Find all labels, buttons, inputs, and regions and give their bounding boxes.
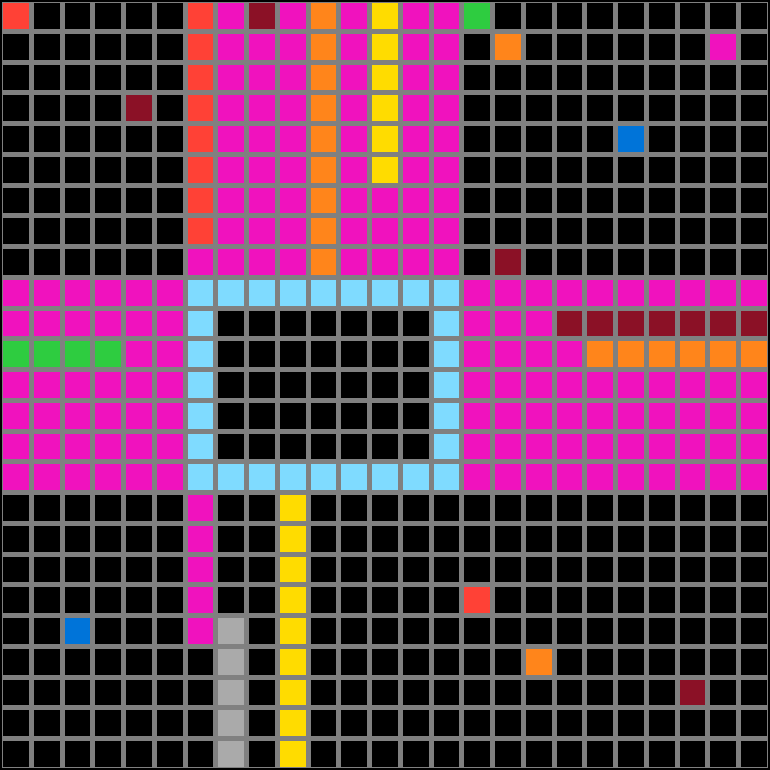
grid-cell-black[interactable] xyxy=(464,557,490,583)
grid-cell-black[interactable] xyxy=(65,557,91,583)
grid-cell-black[interactable] xyxy=(65,126,91,152)
grid-cell-black[interactable] xyxy=(587,188,613,214)
grid-cell-black[interactable] xyxy=(311,557,337,583)
grid-cell-black[interactable] xyxy=(680,557,706,583)
grid-cell-black[interactable] xyxy=(372,649,398,675)
grid-cell-black[interactable] xyxy=(249,680,275,706)
grid-cell-black[interactable] xyxy=(710,218,736,244)
grid-cell-black[interactable] xyxy=(126,188,152,214)
grid-cell-light-blue[interactable] xyxy=(188,403,214,429)
grid-cell-dark-red[interactable] xyxy=(649,311,675,337)
grid-cell-black[interactable] xyxy=(95,649,121,675)
grid-cell-magenta[interactable] xyxy=(34,372,60,398)
grid-cell-light-blue[interactable] xyxy=(218,280,244,306)
grid-cell-black[interactable] xyxy=(557,649,583,675)
grid-cell-magenta[interactable] xyxy=(157,434,183,460)
grid-cell-black[interactable] xyxy=(680,649,706,675)
grid-cell-red[interactable] xyxy=(464,587,490,613)
grid-cell-black[interactable] xyxy=(34,495,60,521)
grid-cell-black[interactable] xyxy=(280,434,306,460)
grid-cell-black[interactable] xyxy=(157,495,183,521)
grid-cell-magenta[interactable] xyxy=(680,434,706,460)
grid-cell-black[interactable] xyxy=(434,680,460,706)
grid-cell-black[interactable] xyxy=(710,587,736,613)
grid-cell-magenta[interactable] xyxy=(526,372,552,398)
grid-cell-black[interactable] xyxy=(126,710,152,736)
grid-cell-light-blue[interactable] xyxy=(188,311,214,337)
grid-cell-black[interactable] xyxy=(126,680,152,706)
grid-cell-magenta[interactable] xyxy=(741,372,767,398)
grid-cell-magenta[interactable] xyxy=(280,218,306,244)
grid-cell-magenta[interactable] xyxy=(3,434,29,460)
grid-cell-black[interactable] xyxy=(526,557,552,583)
grid-cell-black[interactable] xyxy=(557,249,583,275)
grid-cell-black[interactable] xyxy=(280,311,306,337)
grid-cell-black[interactable] xyxy=(311,680,337,706)
grid-cell-magenta[interactable] xyxy=(188,495,214,521)
grid-cell-black[interactable] xyxy=(710,710,736,736)
grid-cell-magenta[interactable] xyxy=(557,403,583,429)
grid-cell-black[interactable] xyxy=(95,526,121,552)
grid-cell-black[interactable] xyxy=(126,65,152,91)
grid-cell-black[interactable] xyxy=(3,65,29,91)
grid-cell-red[interactable] xyxy=(3,3,29,29)
grid-cell-black[interactable] xyxy=(526,218,552,244)
grid-cell-black[interactable] xyxy=(34,587,60,613)
grid-cell-magenta[interactable] xyxy=(95,464,121,490)
grid-cell-magenta[interactable] xyxy=(188,249,214,275)
grid-cell-magenta[interactable] xyxy=(710,464,736,490)
grid-cell-magenta[interactable] xyxy=(618,464,644,490)
grid-cell-black[interactable] xyxy=(341,710,367,736)
grid-cell-black[interactable] xyxy=(126,3,152,29)
grid-cell-black[interactable] xyxy=(741,126,767,152)
grid-cell-magenta[interactable] xyxy=(403,157,429,183)
grid-cell-magenta[interactable] xyxy=(526,403,552,429)
grid-cell-black[interactable] xyxy=(526,157,552,183)
grid-cell-black[interactable] xyxy=(649,495,675,521)
grid-cell-light-blue[interactable] xyxy=(403,464,429,490)
grid-cell-black[interactable] xyxy=(464,95,490,121)
grid-cell-black[interactable] xyxy=(126,587,152,613)
grid-cell-light-blue[interactable] xyxy=(434,372,460,398)
grid-cell-magenta[interactable] xyxy=(218,126,244,152)
grid-cell-orange[interactable] xyxy=(311,95,337,121)
grid-cell-black[interactable] xyxy=(3,495,29,521)
grid-cell-black[interactable] xyxy=(3,34,29,60)
grid-cell-black[interactable] xyxy=(557,34,583,60)
grid-cell-orange[interactable] xyxy=(311,126,337,152)
grid-cell-red[interactable] xyxy=(188,188,214,214)
grid-cell-black[interactable] xyxy=(403,710,429,736)
grid-cell-magenta[interactable] xyxy=(3,280,29,306)
grid-cell-magenta[interactable] xyxy=(95,403,121,429)
grid-cell-black[interactable] xyxy=(403,741,429,767)
grid-cell-yellow[interactable] xyxy=(372,157,398,183)
grid-cell-black[interactable] xyxy=(372,710,398,736)
grid-cell-magenta[interactable] xyxy=(126,280,152,306)
grid-cell-black[interactable] xyxy=(218,372,244,398)
grid-cell-orange[interactable] xyxy=(587,341,613,367)
grid-cell-black[interactable] xyxy=(311,618,337,644)
grid-cell-magenta[interactable] xyxy=(403,218,429,244)
grid-cell-black[interactable] xyxy=(34,649,60,675)
grid-cell-black[interactable] xyxy=(95,218,121,244)
grid-cell-black[interactable] xyxy=(464,526,490,552)
grid-cell-magenta[interactable] xyxy=(587,403,613,429)
grid-cell-black[interactable] xyxy=(618,649,644,675)
grid-cell-black[interactable] xyxy=(34,618,60,644)
grid-cell-orange[interactable] xyxy=(311,157,337,183)
grid-cell-black[interactable] xyxy=(157,34,183,60)
grid-cell-magenta[interactable] xyxy=(218,218,244,244)
grid-cell-yellow[interactable] xyxy=(280,649,306,675)
grid-cell-black[interactable] xyxy=(495,157,521,183)
grid-cell-magenta[interactable] xyxy=(126,341,152,367)
grid-cell-yellow[interactable] xyxy=(280,526,306,552)
grid-cell-black[interactable] xyxy=(741,157,767,183)
grid-cell-black[interactable] xyxy=(126,249,152,275)
grid-cell-black[interactable] xyxy=(403,618,429,644)
grid-cell-red[interactable] xyxy=(188,157,214,183)
grid-cell-black[interactable] xyxy=(649,710,675,736)
grid-cell-magenta[interactable] xyxy=(280,34,306,60)
grid-cell-black[interactable] xyxy=(618,741,644,767)
grid-cell-black[interactable] xyxy=(618,710,644,736)
grid-cell-black[interactable] xyxy=(249,495,275,521)
grid-cell-black[interactable] xyxy=(618,218,644,244)
grid-cell-magenta[interactable] xyxy=(218,249,244,275)
grid-cell-magenta[interactable] xyxy=(403,188,429,214)
grid-cell-black[interactable] xyxy=(65,495,91,521)
grid-cell-black[interactable] xyxy=(249,618,275,644)
grid-cell-yellow[interactable] xyxy=(280,587,306,613)
grid-cell-magenta[interactable] xyxy=(434,65,460,91)
grid-cell-black[interactable] xyxy=(218,311,244,337)
grid-cell-magenta[interactable] xyxy=(403,95,429,121)
grid-cell-magenta[interactable] xyxy=(3,403,29,429)
grid-cell-gray[interactable] xyxy=(218,710,244,736)
grid-cell-magenta[interactable] xyxy=(464,464,490,490)
grid-cell-black[interactable] xyxy=(65,680,91,706)
grid-cell-magenta[interactable] xyxy=(495,280,521,306)
grid-cell-black[interactable] xyxy=(464,495,490,521)
grid-cell-black[interactable] xyxy=(680,249,706,275)
grid-cell-black[interactable] xyxy=(557,157,583,183)
grid-cell-yellow[interactable] xyxy=(280,557,306,583)
grid-cell-black[interactable] xyxy=(680,34,706,60)
grid-cell-magenta[interactable] xyxy=(495,372,521,398)
grid-cell-black[interactable] xyxy=(434,649,460,675)
grid-cell-black[interactable] xyxy=(3,649,29,675)
grid-cell-magenta[interactable] xyxy=(126,403,152,429)
grid-cell-orange[interactable] xyxy=(680,341,706,367)
grid-cell-black[interactable] xyxy=(495,3,521,29)
grid-cell-magenta[interactable] xyxy=(649,464,675,490)
grid-cell-black[interactable] xyxy=(95,65,121,91)
grid-cell-black[interactable] xyxy=(587,587,613,613)
grid-cell-magenta[interactable] xyxy=(741,464,767,490)
grid-cell-black[interactable] xyxy=(218,434,244,460)
grid-cell-magenta[interactable] xyxy=(557,341,583,367)
grid-cell-black[interactable] xyxy=(618,188,644,214)
grid-cell-black[interactable] xyxy=(403,495,429,521)
grid-cell-black[interactable] xyxy=(249,311,275,337)
grid-cell-magenta[interactable] xyxy=(526,464,552,490)
grid-cell-red[interactable] xyxy=(188,34,214,60)
grid-cell-black[interactable] xyxy=(680,157,706,183)
grid-cell-black[interactable] xyxy=(341,557,367,583)
grid-cell-black[interactable] xyxy=(95,680,121,706)
grid-cell-black[interactable] xyxy=(618,618,644,644)
grid-cell-black[interactable] xyxy=(3,526,29,552)
grid-cell-orange[interactable] xyxy=(311,188,337,214)
grid-cell-black[interactable] xyxy=(372,403,398,429)
grid-cell-black[interactable] xyxy=(188,741,214,767)
grid-cell-magenta[interactable] xyxy=(65,464,91,490)
grid-cell-light-blue[interactable] xyxy=(280,280,306,306)
grid-cell-orange[interactable] xyxy=(618,341,644,367)
grid-cell-magenta[interactable] xyxy=(587,280,613,306)
grid-cell-magenta[interactable] xyxy=(126,464,152,490)
grid-cell-magenta[interactable] xyxy=(126,372,152,398)
grid-cell-black[interactable] xyxy=(557,65,583,91)
grid-cell-black[interactable] xyxy=(710,526,736,552)
grid-cell-magenta[interactable] xyxy=(649,372,675,398)
grid-cell-magenta[interactable] xyxy=(464,341,490,367)
grid-cell-black[interactable] xyxy=(3,710,29,736)
grid-cell-magenta[interactable] xyxy=(587,372,613,398)
grid-cell-magenta[interactable] xyxy=(341,34,367,60)
grid-cell-black[interactable] xyxy=(741,495,767,521)
grid-cell-black[interactable] xyxy=(95,495,121,521)
grid-cell-black[interactable] xyxy=(526,188,552,214)
grid-cell-black[interactable] xyxy=(372,311,398,337)
grid-cell-black[interactable] xyxy=(464,65,490,91)
grid-cell-black[interactable] xyxy=(741,34,767,60)
grid-cell-black[interactable] xyxy=(341,618,367,644)
grid-cell-magenta[interactable] xyxy=(280,126,306,152)
grid-cell-black[interactable] xyxy=(587,557,613,583)
grid-cell-black[interactable] xyxy=(188,649,214,675)
grid-cell-black[interactable] xyxy=(249,710,275,736)
grid-cell-magenta[interactable] xyxy=(249,188,275,214)
grid-cell-black[interactable] xyxy=(249,649,275,675)
grid-cell-black[interactable] xyxy=(65,587,91,613)
grid-cell-black[interactable] xyxy=(126,618,152,644)
grid-cell-magenta[interactable] xyxy=(403,126,429,152)
grid-cell-black[interactable] xyxy=(95,157,121,183)
grid-cell-black[interactable] xyxy=(434,526,460,552)
grid-cell-black[interactable] xyxy=(65,188,91,214)
grid-cell-black[interactable] xyxy=(495,65,521,91)
grid-cell-magenta[interactable] xyxy=(249,34,275,60)
grid-cell-black[interactable] xyxy=(157,557,183,583)
grid-cell-black[interactable] xyxy=(3,557,29,583)
grid-cell-magenta[interactable] xyxy=(341,157,367,183)
grid-cell-light-blue[interactable] xyxy=(188,372,214,398)
grid-cell-magenta[interactable] xyxy=(249,95,275,121)
grid-cell-black[interactable] xyxy=(710,680,736,706)
grid-cell-black[interactable] xyxy=(557,188,583,214)
grid-cell-black[interactable] xyxy=(587,218,613,244)
grid-cell-light-blue[interactable] xyxy=(372,280,398,306)
grid-cell-black[interactable] xyxy=(495,557,521,583)
grid-cell-magenta[interactable] xyxy=(434,34,460,60)
grid-cell-black[interactable] xyxy=(680,218,706,244)
grid-cell-black[interactable] xyxy=(649,126,675,152)
grid-cell-black[interactable] xyxy=(34,218,60,244)
grid-cell-black[interactable] xyxy=(557,218,583,244)
grid-cell-magenta[interactable] xyxy=(249,157,275,183)
grid-cell-magenta[interactable] xyxy=(157,341,183,367)
grid-cell-magenta[interactable] xyxy=(372,188,398,214)
grid-cell-magenta[interactable] xyxy=(741,434,767,460)
grid-cell-black[interactable] xyxy=(464,710,490,736)
grid-cell-black[interactable] xyxy=(341,649,367,675)
grid-cell-black[interactable] xyxy=(95,3,121,29)
grid-cell-black[interactable] xyxy=(403,526,429,552)
grid-cell-yellow[interactable] xyxy=(372,34,398,60)
grid-cell-black[interactable] xyxy=(311,311,337,337)
grid-cell-black[interactable] xyxy=(34,249,60,275)
grid-cell-black[interactable] xyxy=(280,341,306,367)
grid-cell-black[interactable] xyxy=(3,249,29,275)
grid-cell-magenta[interactable] xyxy=(495,311,521,337)
grid-cell-black[interactable] xyxy=(95,249,121,275)
grid-cell-black[interactable] xyxy=(372,372,398,398)
grid-cell-black[interactable] xyxy=(434,618,460,644)
grid-cell-black[interactable] xyxy=(65,249,91,275)
grid-cell-magenta[interactable] xyxy=(34,464,60,490)
grid-cell-black[interactable] xyxy=(710,495,736,521)
grid-cell-light-blue[interactable] xyxy=(249,464,275,490)
grid-cell-black[interactable] xyxy=(434,495,460,521)
grid-cell-magenta[interactable] xyxy=(341,3,367,29)
grid-cell-yellow[interactable] xyxy=(372,3,398,29)
grid-cell-yellow[interactable] xyxy=(280,710,306,736)
grid-cell-black[interactable] xyxy=(95,741,121,767)
grid-cell-black[interactable] xyxy=(587,680,613,706)
grid-cell-black[interactable] xyxy=(587,65,613,91)
grid-cell-black[interactable] xyxy=(649,557,675,583)
grid-cell-red[interactable] xyxy=(188,95,214,121)
grid-cell-black[interactable] xyxy=(680,526,706,552)
grid-cell-black[interactable] xyxy=(741,710,767,736)
grid-cell-black[interactable] xyxy=(587,618,613,644)
grid-cell-magenta[interactable] xyxy=(649,403,675,429)
grid-cell-red[interactable] xyxy=(188,126,214,152)
grid-cell-magenta[interactable] xyxy=(710,280,736,306)
grid-cell-magenta[interactable] xyxy=(710,403,736,429)
grid-cell-black[interactable] xyxy=(3,95,29,121)
grid-cell-black[interactable] xyxy=(372,526,398,552)
grid-cell-magenta[interactable] xyxy=(649,434,675,460)
grid-cell-magenta[interactable] xyxy=(3,311,29,337)
grid-cell-magenta[interactable] xyxy=(403,249,429,275)
grid-cell-black[interactable] xyxy=(188,680,214,706)
grid-cell-black[interactable] xyxy=(557,680,583,706)
grid-cell-yellow[interactable] xyxy=(280,495,306,521)
grid-cell-yellow[interactable] xyxy=(372,126,398,152)
grid-cell-black[interactable] xyxy=(741,741,767,767)
grid-cell-black[interactable] xyxy=(741,680,767,706)
grid-cell-black[interactable] xyxy=(157,587,183,613)
grid-cell-black[interactable] xyxy=(680,126,706,152)
grid-cell-orange[interactable] xyxy=(741,341,767,367)
grid-cell-magenta[interactable] xyxy=(218,65,244,91)
grid-cell-magenta[interactable] xyxy=(372,218,398,244)
grid-cell-magenta[interactable] xyxy=(403,65,429,91)
grid-cell-black[interactable] xyxy=(65,65,91,91)
grid-cell-magenta[interactable] xyxy=(249,126,275,152)
grid-cell-black[interactable] xyxy=(65,741,91,767)
grid-cell-yellow[interactable] xyxy=(280,741,306,767)
grid-cell-black[interactable] xyxy=(157,680,183,706)
grid-cell-black[interactable] xyxy=(218,495,244,521)
grid-cell-black[interactable] xyxy=(311,649,337,675)
grid-cell-magenta[interactable] xyxy=(65,403,91,429)
grid-cell-magenta[interactable] xyxy=(280,249,306,275)
grid-cell-green[interactable] xyxy=(3,341,29,367)
grid-cell-magenta[interactable] xyxy=(341,188,367,214)
grid-cell-magenta[interactable] xyxy=(618,280,644,306)
grid-cell-black[interactable] xyxy=(341,403,367,429)
grid-cell-black[interactable] xyxy=(680,188,706,214)
grid-cell-black[interactable] xyxy=(741,188,767,214)
grid-cell-magenta[interactable] xyxy=(65,372,91,398)
grid-cell-black[interactable] xyxy=(710,126,736,152)
grid-cell-magenta[interactable] xyxy=(157,280,183,306)
grid-cell-magenta[interactable] xyxy=(434,95,460,121)
grid-cell-magenta[interactable] xyxy=(587,464,613,490)
grid-cell-black[interactable] xyxy=(3,680,29,706)
grid-cell-magenta[interactable] xyxy=(464,311,490,337)
grid-cell-black[interactable] xyxy=(741,587,767,613)
grid-cell-magenta[interactable] xyxy=(280,95,306,121)
grid-cell-black[interactable] xyxy=(3,157,29,183)
grid-cell-black[interactable] xyxy=(557,3,583,29)
grid-cell-black[interactable] xyxy=(372,495,398,521)
grid-cell-magenta[interactable] xyxy=(341,65,367,91)
grid-cell-black[interactable] xyxy=(372,680,398,706)
grid-cell-orange[interactable] xyxy=(311,218,337,244)
grid-cell-black[interactable] xyxy=(34,126,60,152)
grid-cell-magenta[interactable] xyxy=(495,464,521,490)
grid-cell-black[interactable] xyxy=(710,65,736,91)
grid-cell-magenta[interactable] xyxy=(157,403,183,429)
grid-cell-magenta[interactable] xyxy=(218,3,244,29)
grid-cell-black[interactable] xyxy=(680,3,706,29)
grid-cell-gray[interactable] xyxy=(218,649,244,675)
grid-cell-magenta[interactable] xyxy=(710,34,736,60)
grid-cell-black[interactable] xyxy=(341,341,367,367)
grid-cell-black[interactable] xyxy=(495,618,521,644)
grid-cell-magenta[interactable] xyxy=(372,249,398,275)
grid-cell-black[interactable] xyxy=(618,157,644,183)
grid-cell-magenta[interactable] xyxy=(218,188,244,214)
grid-cell-black[interactable] xyxy=(526,65,552,91)
grid-cell-magenta[interactable] xyxy=(710,372,736,398)
grid-cell-black[interactable] xyxy=(372,741,398,767)
grid-cell-black[interactable] xyxy=(218,557,244,583)
grid-cell-magenta[interactable] xyxy=(188,526,214,552)
grid-cell-light-blue[interactable] xyxy=(372,464,398,490)
grid-cell-black[interactable] xyxy=(618,249,644,275)
grid-cell-orange[interactable] xyxy=(311,3,337,29)
grid-cell-magenta[interactable] xyxy=(557,372,583,398)
grid-cell-black[interactable] xyxy=(495,495,521,521)
